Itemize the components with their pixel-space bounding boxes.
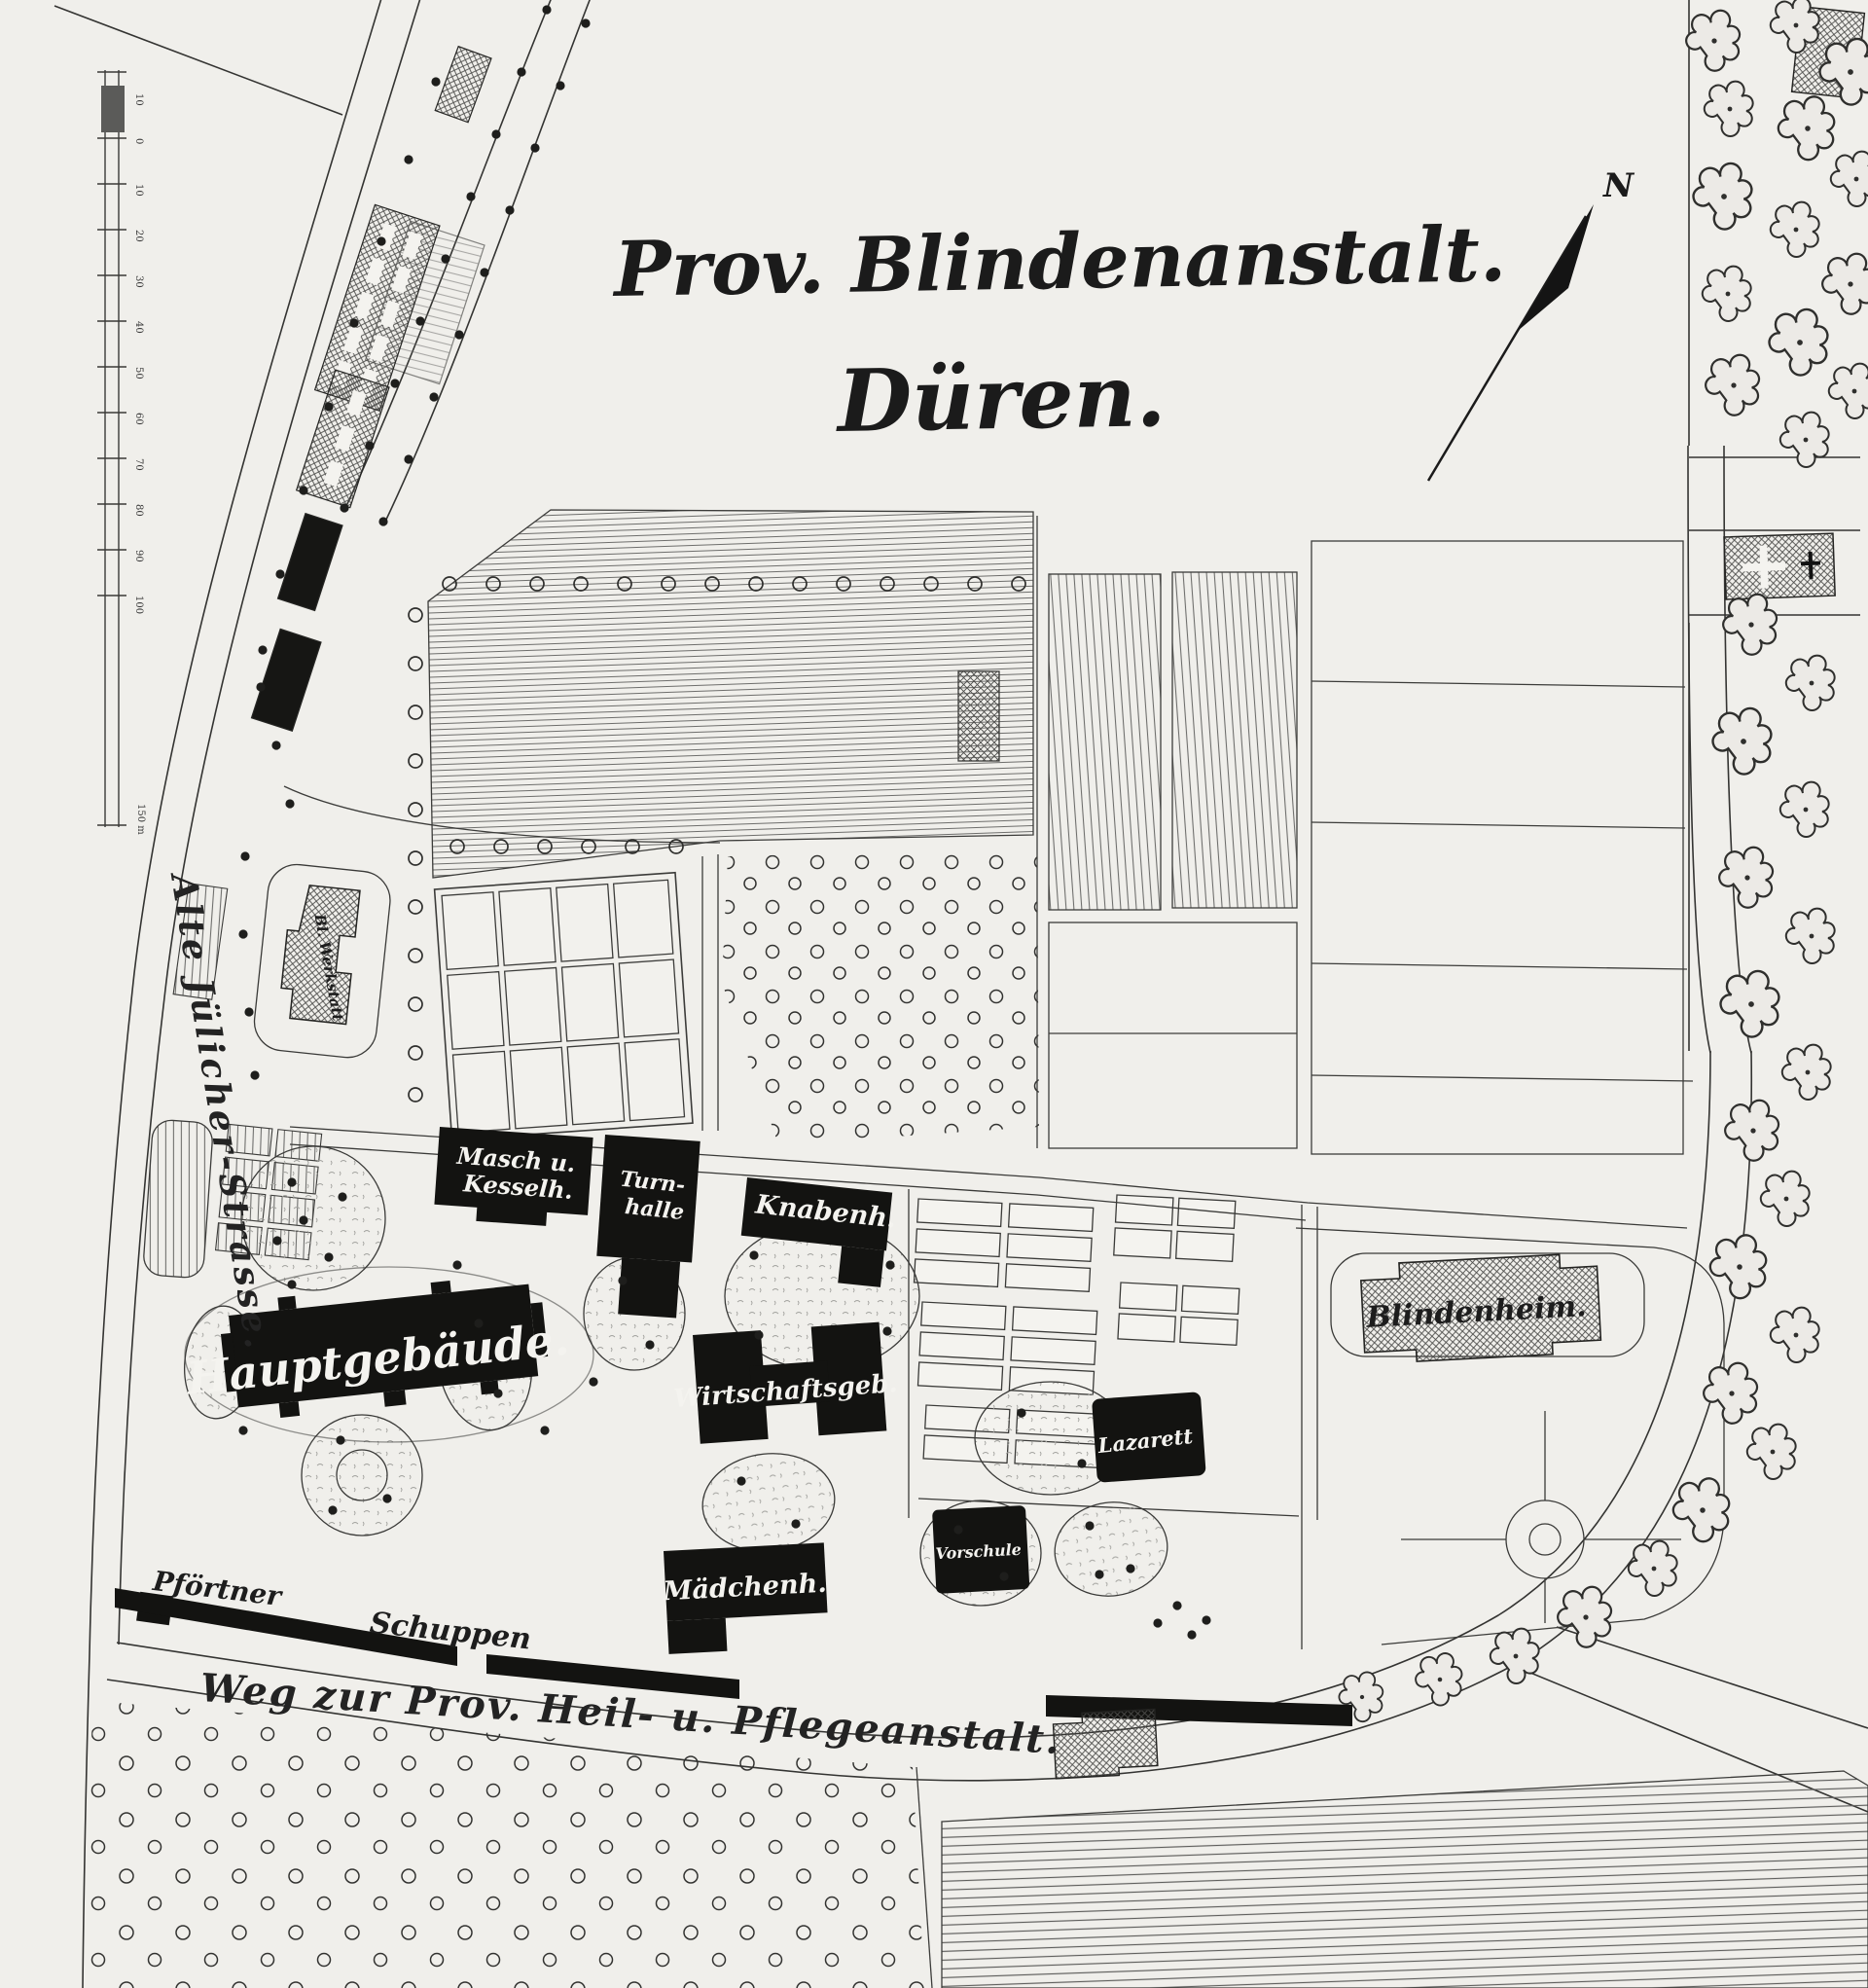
scale-tick: 90 — [133, 550, 144, 562]
field-striped-v1 — [1049, 574, 1161, 910]
scale-tick: 40 — [133, 321, 144, 334]
nursery-bed — [142, 1119, 213, 1279]
lawn-oval — [1049, 1495, 1173, 1603]
scale-tick: 10 — [133, 93, 144, 106]
field-bottom-right — [942, 1771, 1868, 1988]
site-plan-map: 10 0 10 20 30 40 50 60 70 80 90 100 150 … — [0, 0, 1868, 1988]
scale-bar — [97, 70, 126, 827]
top-corner-line — [54, 6, 342, 115]
map-title-line2: Düren. — [834, 344, 1167, 452]
scale-tick: 100 — [133, 596, 144, 614]
scale-tick: 60 — [133, 413, 144, 425]
field-inner-block — [958, 671, 999, 761]
chapel — [1724, 533, 1835, 599]
plot-plain-lower — [1049, 922, 1297, 1148]
plots-right-outline — [1311, 541, 1683, 1154]
scale-tick: 20 — [133, 230, 144, 242]
scale-tick: 10 — [133, 184, 144, 197]
lawn-circle-ring — [302, 1415, 422, 1536]
scale-end-label: 150 m — [135, 804, 146, 835]
scale-tick: 70 — [133, 458, 144, 471]
map-title-line1: Prov. Blindenanstalt. — [611, 210, 1506, 314]
north-label: N — [1602, 166, 1635, 205]
scale-tick: 50 — [133, 367, 144, 380]
scale-tick: 80 — [133, 504, 144, 517]
right-band-lines — [1689, 0, 1860, 1051]
garden-grid-large — [435, 873, 693, 1140]
lawn-oval — [698, 1447, 840, 1558]
orchard-mid — [722, 849, 1039, 1144]
building-farm-shed — [1053, 1710, 1158, 1779]
field-striped-v2 — [1172, 572, 1297, 908]
scale-tick: 30 — [133, 275, 144, 288]
field-hatched-large — [428, 510, 1033, 878]
scale-bar-labels: 10 0 10 20 30 40 50 60 70 80 90 100 150 … — [133, 93, 146, 835]
plots-right-dividers — [1311, 681, 1693, 1081]
site-plan: 10 0 10 20 30 40 50 60 70 80 90 100 150 … — [0, 0, 1868, 1988]
scale-tick: 0 — [133, 138, 144, 144]
